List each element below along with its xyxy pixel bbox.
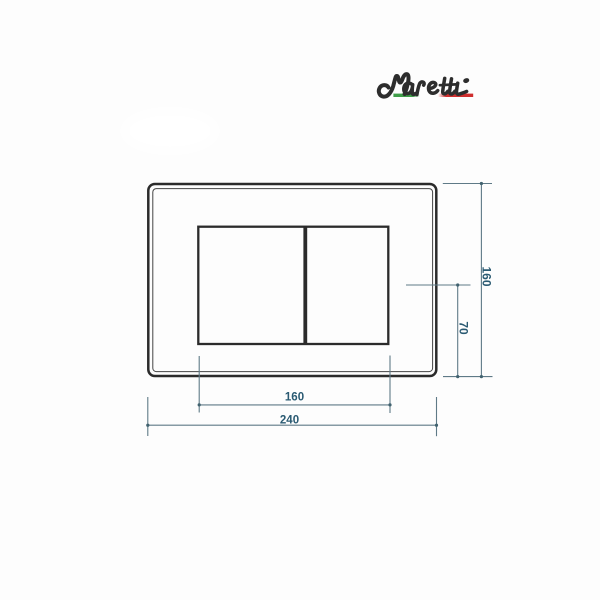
svg-text:160: 160 <box>480 266 494 286</box>
svg-text:160: 160 <box>285 392 304 404</box>
svg-text:70: 70 <box>457 321 471 335</box>
svg-text:240: 240 <box>280 414 299 426</box>
